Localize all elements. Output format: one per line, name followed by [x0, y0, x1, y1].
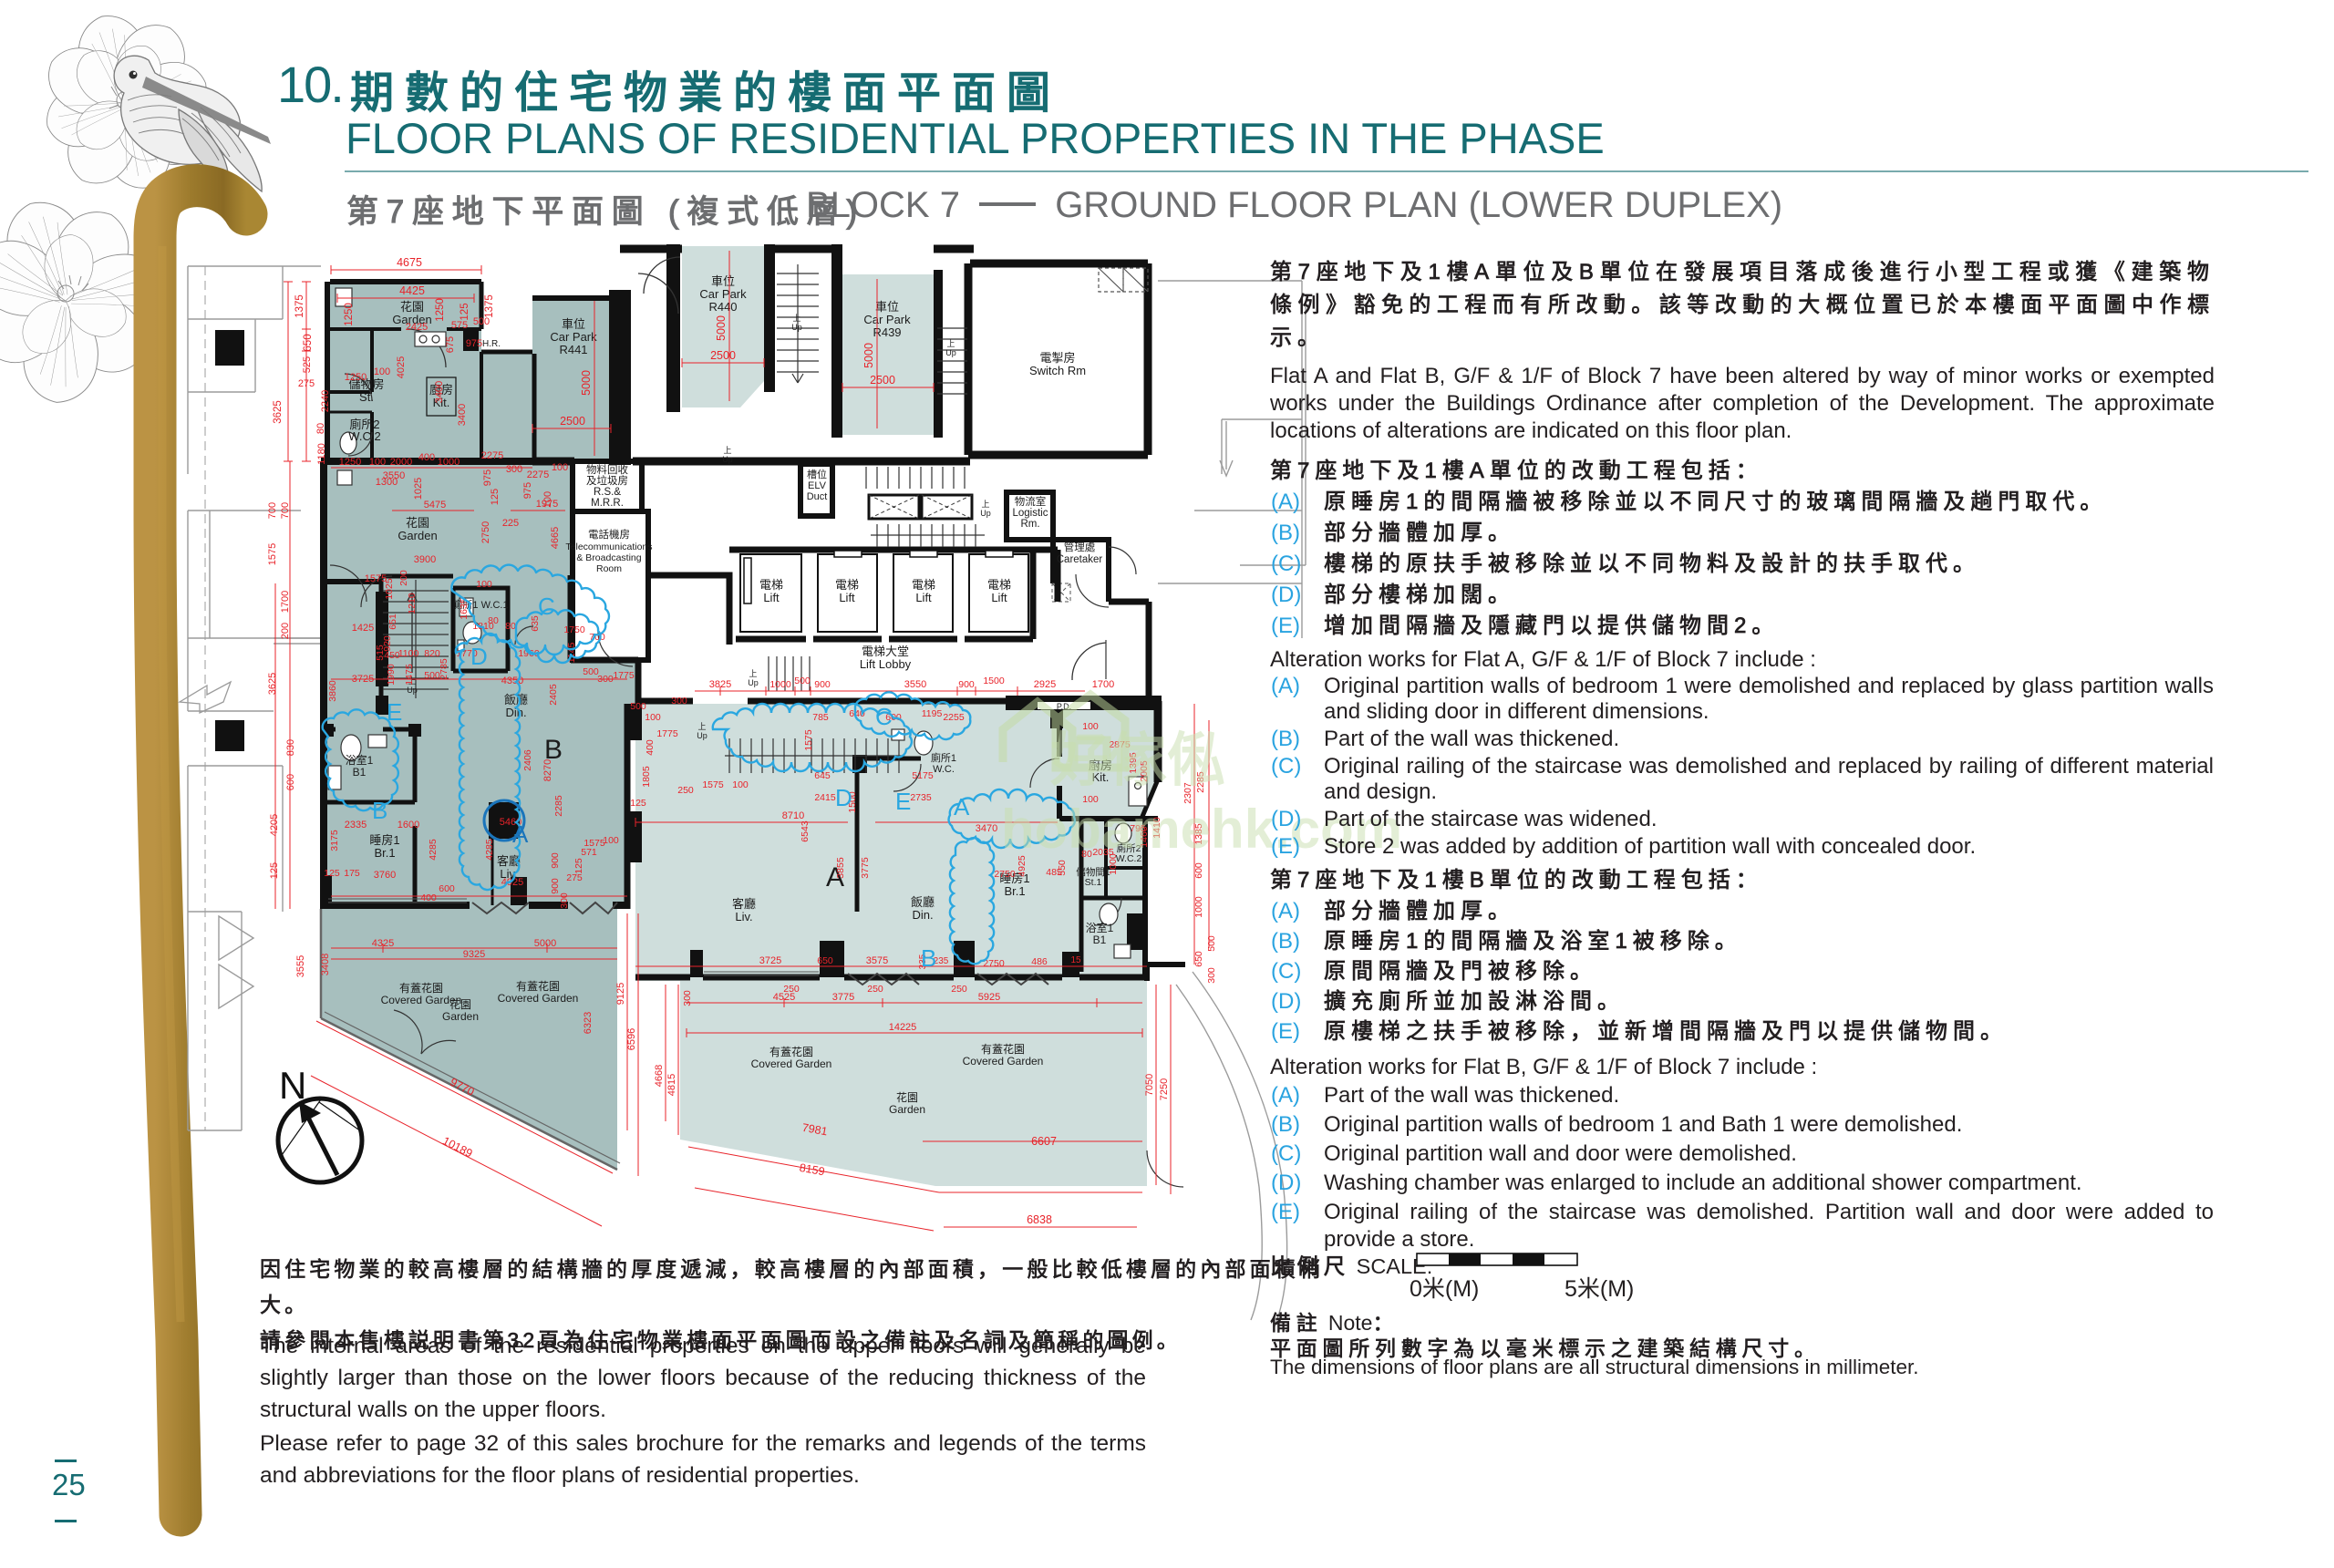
- svg-text:900: 900: [958, 679, 975, 690]
- svg-text:200: 200: [280, 623, 291, 639]
- svg-text:Br.1: Br.1: [374, 846, 395, 860]
- svg-text:浴室1: 浴室1: [1086, 921, 1114, 934]
- svg-text:250: 250: [783, 984, 800, 995]
- svg-text:Covered Garden: Covered Garden: [963, 1055, 1044, 1068]
- svg-text:N: N: [279, 1064, 306, 1107]
- svg-text:花園: 花園: [896, 1090, 918, 1104]
- svg-text:2425: 2425: [406, 322, 428, 333]
- svg-text:B1: B1: [353, 766, 367, 779]
- svg-text:2500: 2500: [870, 374, 895, 387]
- svg-text:3900: 3900: [414, 554, 436, 565]
- svg-text:500: 500: [1206, 935, 1217, 952]
- svg-text:Lift Lobby: Lift Lobby: [860, 657, 912, 671]
- svg-text:Garden: Garden: [442, 1010, 479, 1023]
- svg-text:300: 300: [559, 892, 570, 909]
- svg-text:100: 100: [374, 366, 390, 377]
- svg-text:2255: 2255: [943, 712, 965, 723]
- svg-text:1000: 1000: [769, 679, 791, 690]
- svg-text:上: 上: [697, 722, 706, 731]
- svg-text:3825: 3825: [709, 679, 731, 690]
- svg-text:Up: Up: [407, 686, 418, 695]
- svg-text:車位: 車位: [711, 274, 735, 288]
- svg-text:Garden: Garden: [398, 529, 437, 542]
- svg-text:好傢俬: 好傢俬: [1049, 727, 1225, 793]
- svg-text:300: 300: [682, 990, 693, 1006]
- svg-text:5925: 5925: [978, 992, 1000, 1003]
- svg-text:975: 975: [482, 469, 493, 486]
- svg-text:4675: 4675: [397, 256, 422, 269]
- svg-text:C: C: [538, 593, 555, 620]
- svg-text:125: 125: [630, 798, 646, 809]
- svg-text:700: 700: [267, 502, 278, 519]
- svg-text:及垃圾房: 及垃圾房: [586, 474, 628, 487]
- svg-text:花園: 花園: [449, 997, 471, 1011]
- svg-text:上: 上: [792, 314, 800, 323]
- svg-text:4325: 4325: [372, 938, 394, 949]
- svg-text:3555: 3555: [295, 955, 306, 977]
- svg-text:有蓋花園: 有蓋花園: [516, 979, 560, 993]
- svg-text:電掣房: 電掣房: [1039, 351, 1075, 365]
- svg-text:3725: 3725: [759, 955, 781, 966]
- svg-text:975: 975: [522, 482, 533, 499]
- svg-text:1000: 1000: [438, 457, 460, 468]
- svg-text:Garden: Garden: [889, 1103, 925, 1116]
- svg-text:6323: 6323: [583, 1012, 594, 1034]
- svg-text:2275: 2275: [527, 469, 549, 480]
- svg-text:上: 上: [946, 339, 955, 348]
- svg-text:6607: 6607: [1031, 1135, 1057, 1148]
- svg-text:花園: 花園: [406, 516, 429, 530]
- svg-text:1250: 1250: [435, 298, 446, 322]
- svg-text:1210: 1210: [407, 593, 418, 614]
- svg-text:有蓋花園: 有蓋花園: [399, 981, 443, 995]
- svg-text:175: 175: [344, 868, 360, 879]
- svg-text:200: 200: [398, 570, 409, 586]
- svg-text:650: 650: [303, 334, 314, 351]
- svg-text:1600: 1600: [398, 820, 419, 830]
- svg-text:100: 100: [552, 462, 568, 473]
- svg-text:7050: 7050: [1144, 1074, 1155, 1096]
- svg-text:651: 651: [387, 614, 398, 630]
- svg-text:E: E: [895, 788, 911, 815]
- svg-text:3625: 3625: [267, 673, 278, 695]
- svg-text:Up: Up: [980, 509, 991, 518]
- svg-text:1750: 1750: [563, 624, 585, 635]
- svg-text:Caretaker: Caretaker: [1057, 554, 1103, 565]
- svg-text:Covered Garden: Covered Garden: [751, 1057, 832, 1070]
- svg-text:2406: 2406: [522, 749, 533, 771]
- svg-text:Car Park: Car Park: [699, 287, 747, 301]
- svg-text:600: 600: [439, 883, 455, 894]
- svg-text:125: 125: [460, 303, 470, 320]
- svg-text:2335: 2335: [345, 820, 367, 830]
- svg-text:125: 125: [573, 858, 584, 874]
- svg-text:H.R.: H.R.: [482, 339, 501, 349]
- svg-text:14225: 14225: [889, 1022, 917, 1033]
- svg-text:550: 550: [1057, 860, 1068, 876]
- svg-text:3625: 3625: [273, 400, 284, 424]
- svg-text:Duct: Duct: [807, 491, 828, 502]
- svg-text:4205: 4205: [269, 814, 280, 836]
- svg-text:1025: 1025: [413, 478, 424, 500]
- svg-text:600: 600: [285, 774, 296, 790]
- svg-text:1700: 1700: [1092, 679, 1114, 690]
- svg-text:125: 125: [269, 862, 280, 879]
- svg-text:571: 571: [581, 847, 597, 858]
- svg-text:250: 250: [677, 785, 694, 796]
- svg-text:5000: 5000: [534, 938, 556, 949]
- svg-text:785: 785: [812, 712, 829, 723]
- svg-text:100: 100: [603, 835, 619, 846]
- svg-text:1000: 1000: [1193, 896, 1204, 918]
- svg-text:3408: 3408: [320, 954, 331, 975]
- svg-text:電梯大堂: 電梯大堂: [862, 645, 909, 658]
- svg-text:電梯: 電梯: [912, 578, 935, 592]
- svg-text:3400: 3400: [434, 381, 445, 403]
- svg-text:Lift: Lift: [839, 591, 855, 604]
- svg-text:1025: 1025: [384, 578, 395, 600]
- svg-text:500: 500: [424, 670, 440, 681]
- svg-text:4815: 4815: [666, 1074, 677, 1096]
- svg-text:5000: 5000: [862, 343, 875, 368]
- svg-text:Lift: Lift: [915, 591, 932, 604]
- svg-text:2285: 2285: [553, 795, 564, 817]
- svg-text:400: 400: [645, 739, 656, 756]
- svg-text:3775: 3775: [860, 857, 871, 879]
- svg-text:500: 500: [794, 676, 811, 686]
- svg-text:1195: 1195: [922, 708, 943, 719]
- svg-text:2415: 2415: [814, 792, 836, 803]
- svg-text:4425: 4425: [399, 284, 425, 297]
- svg-text:2240: 2240: [320, 390, 331, 412]
- svg-text:3860: 3860: [327, 680, 338, 702]
- svg-text:7250: 7250: [1159, 1078, 1170, 1100]
- svg-text:5175: 5175: [912, 770, 934, 781]
- svg-text:Rm.: Rm.: [1020, 519, 1039, 530]
- svg-text:2785: 2785: [439, 658, 449, 680]
- svg-text:Up: Up: [945, 348, 956, 357]
- svg-text:管理處: 管理處: [1064, 541, 1096, 553]
- svg-text:A: A: [954, 793, 970, 820]
- svg-text:電梯: 電梯: [835, 578, 859, 592]
- svg-text:500: 500: [473, 316, 490, 327]
- svg-text:5000: 5000: [580, 370, 593, 396]
- svg-text:675: 675: [445, 336, 456, 353]
- svg-text:上: 上: [749, 669, 757, 678]
- svg-text:525: 525: [302, 356, 313, 373]
- svg-text:物流室: 物流室: [1015, 495, 1047, 508]
- svg-text:125: 125: [490, 489, 501, 505]
- svg-text:1575: 1575: [267, 543, 278, 565]
- svg-text:R440: R440: [708, 300, 737, 314]
- svg-text:B: B: [921, 944, 936, 972]
- svg-text:1775: 1775: [656, 728, 678, 739]
- svg-text:Up: Up: [748, 678, 759, 687]
- svg-text:2750: 2750: [994, 869, 1016, 880]
- svg-text:Telecommunications: Telecommunications: [565, 542, 652, 552]
- svg-text:2000: 2000: [390, 457, 412, 468]
- svg-text:有蓋花園: 有蓋花園: [769, 1045, 813, 1058]
- svg-text:2750: 2750: [480, 521, 491, 543]
- svg-text:975: 975: [466, 338, 482, 349]
- svg-text:2735: 2735: [910, 792, 932, 803]
- svg-text:2500: 2500: [710, 349, 736, 362]
- svg-text:1475: 1475: [404, 664, 415, 686]
- svg-text:1375: 1375: [484, 294, 495, 318]
- svg-text:客廳: 客廳: [732, 897, 756, 911]
- svg-text:E: E: [387, 698, 402, 726]
- svg-text:睡房1: 睡房1: [369, 833, 399, 847]
- svg-text:1575: 1575: [803, 729, 814, 751]
- svg-text:1575: 1575: [702, 779, 724, 790]
- svg-text:1100: 1100: [398, 648, 419, 659]
- svg-text:80: 80: [315, 423, 326, 434]
- svg-text:車位: 車位: [562, 317, 585, 331]
- svg-text:100: 100: [369, 457, 386, 468]
- svg-text:900: 900: [550, 852, 561, 869]
- svg-text:電梯: 電梯: [987, 578, 1011, 592]
- svg-text:C: C: [875, 703, 893, 730]
- svg-text:1375: 1375: [294, 294, 305, 318]
- svg-text:Din.: Din.: [912, 908, 933, 922]
- svg-text:2405: 2405: [548, 684, 559, 706]
- svg-text:ELV: ELV: [808, 480, 827, 491]
- svg-text:1500: 1500: [983, 676, 1005, 686]
- svg-text:4025: 4025: [396, 356, 407, 378]
- svg-text:1805: 1805: [641, 766, 652, 788]
- svg-text:Up: Up: [791, 323, 802, 332]
- svg-text:5475: 5475: [424, 500, 446, 511]
- svg-text:上: 上: [723, 446, 731, 455]
- svg-text:廁所1: 廁所1: [931, 751, 956, 764]
- svg-text:9325: 9325: [463, 949, 485, 960]
- svg-text:830: 830: [285, 739, 296, 756]
- svg-text:Up: Up: [722, 455, 733, 464]
- svg-text:9125: 9125: [615, 983, 626, 1005]
- svg-text:500: 500: [630, 701, 646, 712]
- svg-text:4668: 4668: [654, 1065, 665, 1087]
- svg-text:電梯: 電梯: [759, 578, 783, 592]
- svg-text:3470: 3470: [976, 823, 997, 834]
- svg-text:1250: 1250: [339, 457, 361, 468]
- svg-text:300: 300: [597, 674, 614, 685]
- svg-text:1700: 1700: [280, 591, 291, 613]
- svg-text:250: 250: [867, 984, 883, 995]
- svg-text:400: 400: [420, 892, 437, 903]
- svg-text:3855: 3855: [835, 857, 846, 879]
- svg-text:& Broadcasting: & Broadcasting: [576, 552, 641, 563]
- svg-text:槽位: 槽位: [807, 468, 827, 480]
- svg-text:Logistic: Logistic: [1013, 508, 1048, 519]
- svg-text:M.R.R.: M.R.R.: [591, 498, 624, 509]
- svg-text:3550: 3550: [904, 679, 926, 690]
- svg-text:6838: 6838: [1027, 1213, 1052, 1226]
- svg-text:300: 300: [1206, 967, 1217, 984]
- svg-text:125: 125: [324, 868, 340, 879]
- svg-text:10189: 10189: [440, 1134, 474, 1160]
- svg-text:80: 80: [505, 621, 516, 632]
- svg-text:8710: 8710: [782, 810, 804, 821]
- svg-text:1425: 1425: [352, 623, 374, 634]
- svg-text:600: 600: [1193, 862, 1204, 879]
- svg-text:2275: 2275: [481, 450, 503, 461]
- svg-text:St.1: St.1: [1085, 877, 1102, 888]
- svg-text:1775: 1775: [613, 670, 635, 681]
- svg-text:100: 100: [476, 579, 492, 590]
- svg-text:R441: R441: [559, 343, 587, 356]
- svg-text:1180: 1180: [316, 443, 327, 465]
- svg-text:3725: 3725: [352, 674, 374, 685]
- svg-text:車位: 車位: [875, 300, 899, 314]
- svg-text:D: D: [470, 643, 488, 670]
- svg-text:6543: 6543: [800, 820, 811, 842]
- svg-text:1300: 1300: [376, 477, 398, 488]
- svg-text:Lift: Lift: [763, 591, 780, 604]
- svg-text:100: 100: [732, 779, 749, 790]
- svg-text:1990: 1990: [386, 664, 397, 686]
- svg-text:820: 820: [424, 648, 440, 659]
- svg-text:1250: 1250: [344, 303, 355, 326]
- svg-text:2925: 2925: [1034, 679, 1056, 690]
- svg-text:D: D: [835, 784, 852, 811]
- svg-text:Lift: Lift: [991, 591, 1007, 604]
- svg-text:B1: B1: [1093, 934, 1107, 946]
- svg-text:R.S.&: R.S.&: [594, 487, 621, 498]
- svg-text:Car Park: Car Park: [550, 330, 597, 344]
- svg-text:電話機房: 電話機房: [588, 528, 630, 541]
- svg-text:650: 650: [817, 955, 833, 966]
- svg-text:300: 300: [671, 696, 687, 707]
- svg-text:1975: 1975: [536, 499, 558, 510]
- svg-text:Car Park: Car Park: [863, 313, 911, 326]
- svg-text:物料回收: 物料回收: [586, 463, 628, 476]
- svg-text:B: B: [372, 797, 387, 824]
- svg-text:有蓋花園: 有蓋花園: [981, 1042, 1025, 1056]
- svg-text:15: 15: [1070, 955, 1081, 965]
- svg-text:650: 650: [1193, 951, 1204, 967]
- svg-text:100: 100: [645, 712, 661, 723]
- svg-text:4665: 4665: [550, 527, 561, 549]
- svg-text:飯廳: 飯廳: [911, 895, 935, 909]
- svg-text:250: 250: [951, 984, 967, 995]
- svg-text:3760: 3760: [374, 870, 396, 881]
- svg-text:3575: 3575: [866, 955, 888, 966]
- svg-text:275: 275: [298, 378, 315, 389]
- svg-text:900: 900: [814, 679, 831, 690]
- svg-text:Liv.: Liv.: [735, 910, 752, 923]
- svg-text:Covered Garden: Covered Garden: [498, 992, 579, 1005]
- svg-text:225: 225: [502, 518, 519, 529]
- svg-text:4285: 4285: [484, 839, 495, 861]
- svg-text:上: 上: [981, 500, 989, 509]
- svg-text:W.C.2: W.C.2: [348, 429, 380, 443]
- svg-text:Room: Room: [596, 563, 622, 574]
- svg-text:W.C.: W.C.: [933, 764, 955, 775]
- svg-text:575: 575: [451, 320, 468, 331]
- svg-text:3775: 3775: [832, 992, 854, 1003]
- svg-text:浴室1: 浴室1: [346, 753, 374, 767]
- svg-text:3175: 3175: [329, 830, 340, 851]
- svg-text:Switch Rm: Switch Rm: [1029, 364, 1086, 377]
- svg-text:5000: 5000: [715, 315, 728, 341]
- svg-text:486: 486: [1031, 956, 1048, 967]
- svg-text:花園: 花園: [400, 300, 424, 314]
- svg-text:3400: 3400: [457, 404, 468, 426]
- svg-text:St.: St.: [359, 390, 374, 404]
- svg-text:2500: 2500: [560, 415, 585, 428]
- svg-text:4285: 4285: [428, 839, 439, 861]
- svg-text:400: 400: [418, 452, 435, 463]
- svg-text:300: 300: [506, 464, 522, 475]
- svg-text:1250: 1250: [345, 372, 367, 383]
- svg-text:700: 700: [280, 502, 291, 519]
- svg-text:Br.1: Br.1: [1004, 884, 1025, 898]
- svg-text:6596: 6596: [626, 1028, 637, 1050]
- svg-text:Up: Up: [697, 731, 707, 740]
- svg-text:900: 900: [550, 878, 561, 894]
- svg-text:8270: 8270: [542, 759, 553, 781]
